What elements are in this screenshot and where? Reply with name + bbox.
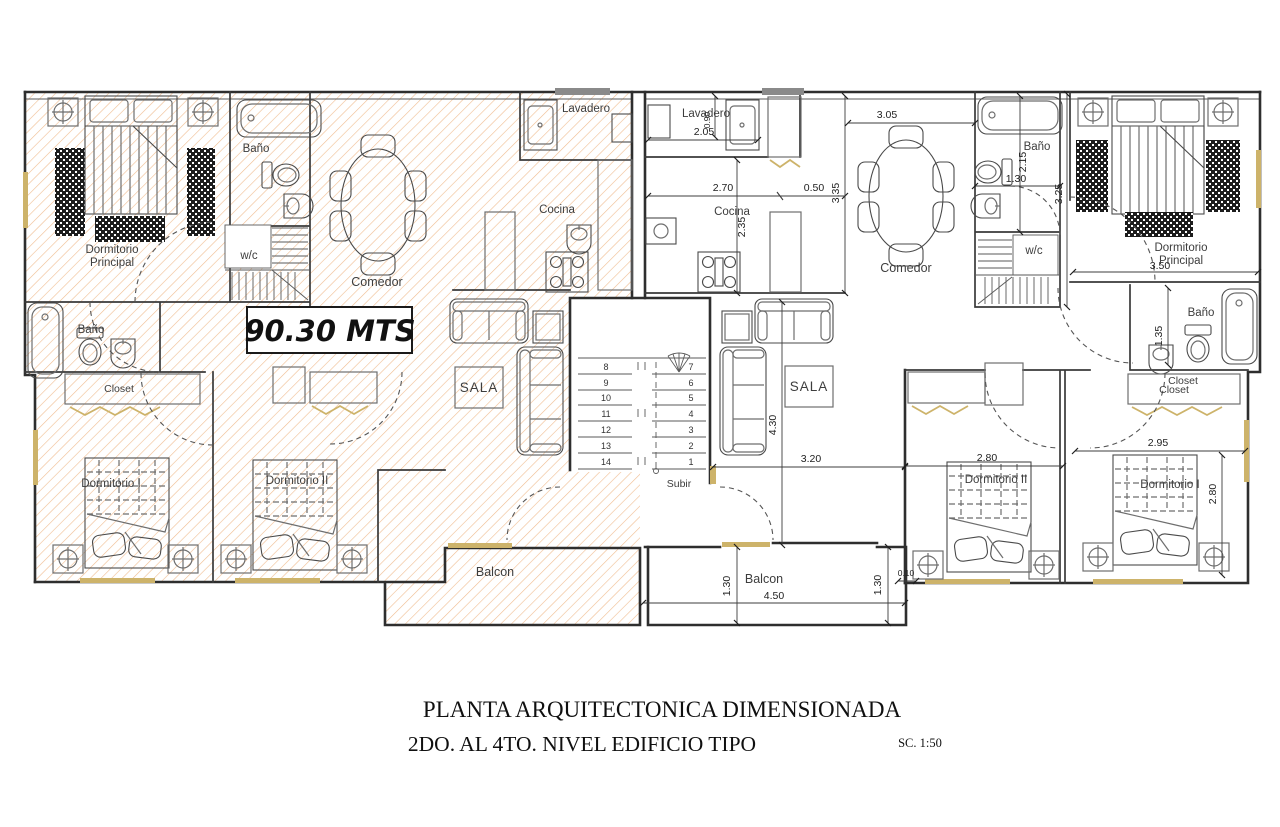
step-number: 4 <box>688 409 693 419</box>
area-badge-text: 90.30 MTS <box>244 314 415 348</box>
drawing-scale: SC. 1:50 <box>898 736 942 750</box>
dim-label: 3.35 <box>830 183 842 204</box>
room-label-comedor: Comedor <box>351 275 402 289</box>
dim-label: 4.50 <box>764 590 785 602</box>
dim-label: 3.20 <box>801 453 822 465</box>
laundry-sink-icon <box>648 105 670 138</box>
register-icon <box>1208 98 1238 126</box>
room-label-sala: SALA <box>460 380 499 395</box>
kitchen-sink-icon <box>646 218 676 244</box>
step-number: 14 <box>601 457 611 467</box>
dim-label: 1.30 <box>872 575 884 596</box>
side-table-icon <box>722 311 752 343</box>
dim-label: 0.50 <box>804 182 825 194</box>
room-label-bano: Baño <box>1188 307 1215 319</box>
rug-icon <box>55 148 85 236</box>
step-number: 8 <box>603 362 608 372</box>
register-icon <box>1029 551 1059 579</box>
step-number: 6 <box>688 378 693 388</box>
cabinet-icon <box>768 97 801 157</box>
room-label-dormitorio-1: Dormitorio I <box>81 478 140 490</box>
rug-icon <box>1125 212 1193 237</box>
step-number: 3 <box>688 425 693 435</box>
step-number: 2 <box>688 441 693 451</box>
room-label-dormitorio-principal: Dormitorio <box>1154 242 1207 254</box>
room-label-sala: SALA <box>790 379 829 394</box>
step-number: 7 <box>688 362 693 372</box>
bathtub-icon <box>1222 289 1257 364</box>
rug-icon <box>95 216 165 242</box>
room-label-closet: Closet <box>104 383 134 395</box>
right-unit-labels: Lavadero Cocina Comedor Baño w/c Dormito… <box>682 108 1214 586</box>
main-stair: 8 9 10 11 12 13 14 7 6 5 4 3 2 1 Subir <box>572 300 708 490</box>
sofa-icon <box>720 347 766 455</box>
washer-icon <box>726 100 759 150</box>
sofa-icon <box>755 299 833 343</box>
step-number: 5 <box>688 393 693 403</box>
dim-label: 2.95 <box>1148 437 1169 449</box>
step-number: 13 <box>601 441 611 451</box>
service-stair <box>975 235 1060 304</box>
rug-icon <box>1076 140 1108 212</box>
room-label-lavadero: Lavadero <box>562 103 610 115</box>
rug-icon <box>1206 140 1240 212</box>
register-icon <box>913 551 943 579</box>
closet-door-icon <box>985 363 1023 405</box>
room-label-bano: Baño <box>243 143 270 155</box>
dim-label: 2.80 <box>1207 484 1219 505</box>
dim-label: 2.80 <box>977 452 998 464</box>
room-label-dormitorio-principal: Dormitorio <box>85 244 138 256</box>
dim-label: 1.35 <box>1153 326 1165 347</box>
drawing-title: PLANTA ARQUITECTONICA DIMENSIONADA <box>423 697 902 722</box>
step-number: 11 <box>601 409 610 419</box>
room-label-dormitorio-principal: Principal <box>1159 255 1203 267</box>
drawing-subtitle: 2DO. AL 4TO. NIVEL EDIFICIO TIPO <box>408 732 756 756</box>
right-unit-furniture <box>646 96 1257 579</box>
room-label-wc: w/c <box>1024 245 1043 257</box>
bed-icon <box>1113 455 1197 565</box>
dim-label: 0.10 <box>898 568 915 578</box>
room-label-dormitorio-principal: Principal <box>90 257 134 269</box>
room-label-balcon: Balcon <box>745 572 783 586</box>
sink-bowl-icon <box>654 224 668 238</box>
stair-direction-label: Subir <box>667 478 692 490</box>
room-label-cocina: Cocina <box>539 204 575 216</box>
room-label-bano: Baño <box>1024 141 1051 153</box>
step-number: 12 <box>601 425 611 435</box>
double-bed-icon <box>1112 96 1204 214</box>
room-label-bano: Baño <box>78 324 105 336</box>
dim-label: 2.15 <box>1017 152 1029 173</box>
dim-label: 2.35 <box>736 217 748 238</box>
room-label-balcon: Balcon <box>476 565 514 579</box>
room-label-comedor: Comedor <box>880 261 931 275</box>
step-number: 10 <box>601 393 611 403</box>
floor-plan-drawing: 8 9 10 11 12 13 14 7 6 5 4 3 2 1 Subir <box>0 0 1280 827</box>
step-number: 9 <box>603 378 608 388</box>
toilet-icon <box>1185 325 1211 362</box>
step-number: 1 <box>688 457 693 467</box>
dining-set-icon <box>858 126 954 266</box>
room-label-wc: w/c <box>239 250 258 262</box>
stove-icon <box>698 252 740 292</box>
title-block: PLANTA ARQUITECTONICA DIMENSIONADA 2DO. … <box>408 697 942 756</box>
dim-label: 2.70 <box>713 182 734 194</box>
counter-icon <box>770 212 801 292</box>
register-icon <box>1078 98 1108 126</box>
dim-label: 1.30 <box>1006 173 1027 185</box>
room-label-dormitorio-1: Dormitorio I <box>1140 479 1199 491</box>
dim-label: 3.05 <box>877 109 898 121</box>
room-label-dormitorio-2: Dormitorio II <box>965 474 1028 486</box>
register-icon <box>1199 543 1229 571</box>
dim-label: 1.30 <box>721 576 733 597</box>
dim-label: 4.30 <box>767 415 779 436</box>
room-label-dormitorio-2: Dormitorio II <box>266 475 329 487</box>
room-label-lavadero: Lavadero <box>682 108 730 120</box>
room-label-closet: Closet <box>1159 384 1189 396</box>
room-label-cocina: Cocina <box>714 206 750 218</box>
closet-icon <box>908 372 985 403</box>
floor-plan-page: 8 9 10 11 12 13 14 7 6 5 4 3 2 1 Subir <box>0 0 1280 827</box>
area-badge: 90.30 MTS <box>244 307 415 353</box>
dim-label: 3.25 <box>1053 184 1065 205</box>
register-icon <box>1083 543 1113 571</box>
